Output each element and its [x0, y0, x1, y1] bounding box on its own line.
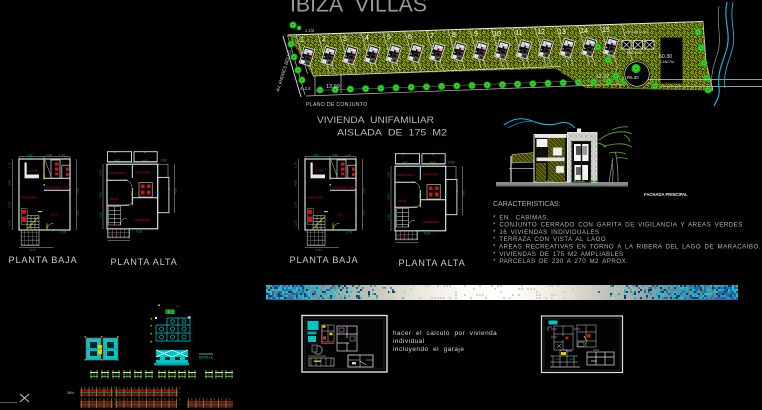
svg-text:4.47: 4.47 — [313, 153, 319, 157]
svg-text:COMEDOR Y SALA: COMEDOR Y SALA — [332, 186, 357, 190]
svg-text:2.00: 2.00 — [362, 210, 366, 216]
svg-text:COCINA: COCINA — [314, 170, 324, 173]
svg-text:CARACTERISTICAS:: CARACTERISTICAS: — [493, 201, 561, 208]
svg-text:COCINA: COCINA — [28, 170, 38, 173]
svg-text:5.00: 5.00 — [362, 188, 366, 194]
svg-text:DORMITORIO: DORMITORIO — [423, 174, 439, 177]
svg-text:··: ·· — [176, 304, 180, 310]
svg-text:4.08: 4.08 — [8, 180, 12, 186]
svg-text:IBIZA VILLAS: IBIZA VILLAS — [290, 0, 427, 17]
svg-text:* VIVIENDAS DE 175 M2 AMPLIABL: * VIVIENDAS DE 175 M2 AMPLIABLES — [493, 251, 624, 258]
svg-text:3.10: 3.10 — [8, 202, 12, 208]
svg-text:11: 11 — [515, 30, 522, 37]
svg-text:1 5+8.50 M 400: 1 5+8.50 M 400 — [625, 30, 649, 34]
svg-text:14: 14 — [580, 28, 588, 35]
svg-text:1: 1 — [300, 37, 304, 44]
svg-text:2.05: 2.05 — [386, 172, 390, 178]
svg-text:AISLADA DE 175 M2: AISLADA DE 175 M2 — [337, 128, 447, 139]
svg-text:0.98: 0.98 — [332, 153, 338, 157]
svg-text:4.05: 4.05 — [98, 192, 102, 198]
svg-text:1 1/2: 1 1/2 — [305, 28, 315, 33]
svg-text:4=2.8: 4=2.8 — [300, 86, 311, 91]
svg-text:DORMITORIO: DORMITORIO — [423, 221, 439, 224]
svg-text:3: 3 — [343, 36, 347, 43]
svg-text:DORMITORIO P.: DORMITORIO P. — [397, 174, 415, 177]
svg-text:8: 8 — [452, 32, 456, 39]
svg-text:1.10: 1.10 — [345, 153, 351, 157]
svg-text:10: 10 — [493, 31, 501, 38]
svg-text:1.13: 1.13 — [294, 162, 298, 168]
svg-text:5.00: 5.00 — [76, 188, 80, 194]
svg-text:* PARCELAS DE 230 A 270 M2 APR: * PARCELAS DE 230 A 270 M2 APROX. — [493, 258, 628, 265]
svg-text:* TERRAZA CON VISTA AL LAGO: * TERRAZA CON VISTA AL LAGO — [493, 236, 606, 243]
svg-text:* 16 VIVIENDAS INDIVIDUALES: * 16 VIVIENDAS INDIVIDUALES — [493, 229, 600, 236]
svg-text:PLANO DE CONJUNTO: PLANO DE CONJUNTO — [306, 102, 368, 108]
svg-text:COMEDOR Y SALA: COMEDOR Y SALA — [46, 186, 71, 190]
svg-text:CANCHA: CANCHA — [660, 60, 675, 64]
svg-text:4: 4 — [365, 35, 369, 42]
svg-text:12: 12 — [537, 29, 545, 36]
svg-text:▲: ▲ — [157, 302, 161, 307]
svg-text:3.10: 3.10 — [294, 202, 298, 208]
svg-text:SALON: SALON — [398, 200, 406, 203]
svg-text:DORMITORIO: DORMITORIO — [307, 197, 323, 200]
svg-text:1.32: 1.32 — [8, 220, 12, 226]
svg-text:0.98: 0.98 — [46, 153, 52, 157]
svg-text:6: 6 — [408, 34, 412, 41]
svg-text:2.70: 2.70 — [60, 231, 66, 235]
svg-text:SALON: SALON — [110, 198, 118, 201]
svg-text:4.47: 4.47 — [27, 153, 33, 157]
svg-text:2.05: 2.05 — [98, 170, 102, 176]
svg-text:4.05: 4.05 — [386, 194, 390, 200]
svg-text:13.99: 13.99 — [326, 84, 340, 90]
svg-text:2.30: 2.30 — [98, 212, 102, 218]
svg-text:SALA: SALA — [337, 214, 344, 217]
svg-text:12.37: 12.37 — [596, 74, 609, 80]
svg-text:PLANTA BAJA: PLANTA BAJA — [9, 255, 78, 265]
svg-text:3#½: 3#½ — [67, 391, 74, 395]
svg-text:FACHADA PRINCIPAL: FACHADA PRINCIPAL — [644, 192, 688, 197]
svg-text:0.92: 0.92 — [136, 230, 142, 234]
svg-text:0.92: 0.92 — [424, 232, 430, 236]
svg-text:1.13: 1.13 — [8, 162, 12, 168]
svg-text:4.50: 4.50 — [174, 188, 178, 194]
svg-text:9: 9 — [474, 31, 478, 38]
svg-text:* CONJUNTO CERRADO CON GARITA: * CONJUNTO CERRADO CON GARITA DE VIGILAN… — [493, 222, 743, 229]
svg-text:4.08: 4.08 — [294, 180, 298, 186]
svg-text:2.30: 2.30 — [386, 214, 390, 220]
svg-text:2.70: 2.70 — [346, 231, 352, 235]
svg-text:DORMITORIO: DORMITORIO — [135, 219, 151, 222]
svg-text:0.80: 0.80 — [449, 161, 455, 165]
svg-text:DORMITORIO: DORMITORIO — [135, 172, 151, 175]
svg-text:incluyendo el garaje: incluyendo el garaje — [393, 346, 464, 353]
svg-text:PLANTA ALTA: PLANTA ALTA — [398, 258, 465, 268]
svg-text:DETALLE: DETALLE — [199, 356, 213, 360]
svg-text:2: 2 — [322, 36, 326, 43]
svg-text:1.32: 1.32 — [294, 220, 298, 226]
svg-text:DORMITORIO P.: DORMITORIO P. — [109, 172, 127, 175]
svg-text:SALA: SALA — [51, 214, 58, 217]
svg-text:PLANTA BAJA: PLANTA BAJA — [290, 255, 359, 265]
svg-text:6.47: 6.47 — [316, 248, 322, 252]
svg-text:7: 7 — [430, 33, 434, 40]
svg-text:0.80: 0.80 — [161, 159, 167, 163]
svg-text:BODEGA: BODEGA — [627, 51, 643, 55]
svg-text:hacer el calculo por vivie: hacer el calculo por vivienda — [393, 330, 497, 337]
svg-text:individual: individual — [393, 338, 425, 345]
svg-text:* AREAS RECREATIVAS EN TORNO A: * AREAS RECREATIVAS EN TORNO A LA RIBERA… — [493, 244, 761, 251]
svg-text:4.50: 4.50 — [462, 190, 466, 196]
svg-text:13: 13 — [558, 29, 566, 36]
svg-text:5: 5 — [387, 34, 391, 41]
svg-text:VIVIENDA UNIFAMILIAR: VIVIENDA UNIFAMILIAR — [317, 115, 434, 126]
svg-text:DORMITORIO: DORMITORIO — [21, 197, 37, 200]
svg-text:1.10: 1.10 — [59, 153, 65, 157]
svg-text:R6.30: R6.30 — [627, 75, 639, 80]
svg-text:PLANTA ALTA: PLANTA ALTA — [110, 257, 177, 267]
svg-text:* EN CABIMAS.: * EN CABIMAS. — [493, 214, 549, 221]
svg-text:15: 15 — [602, 27, 610, 34]
svg-text:2.00: 2.00 — [76, 210, 80, 216]
svg-text:6.47: 6.47 — [30, 248, 36, 252]
